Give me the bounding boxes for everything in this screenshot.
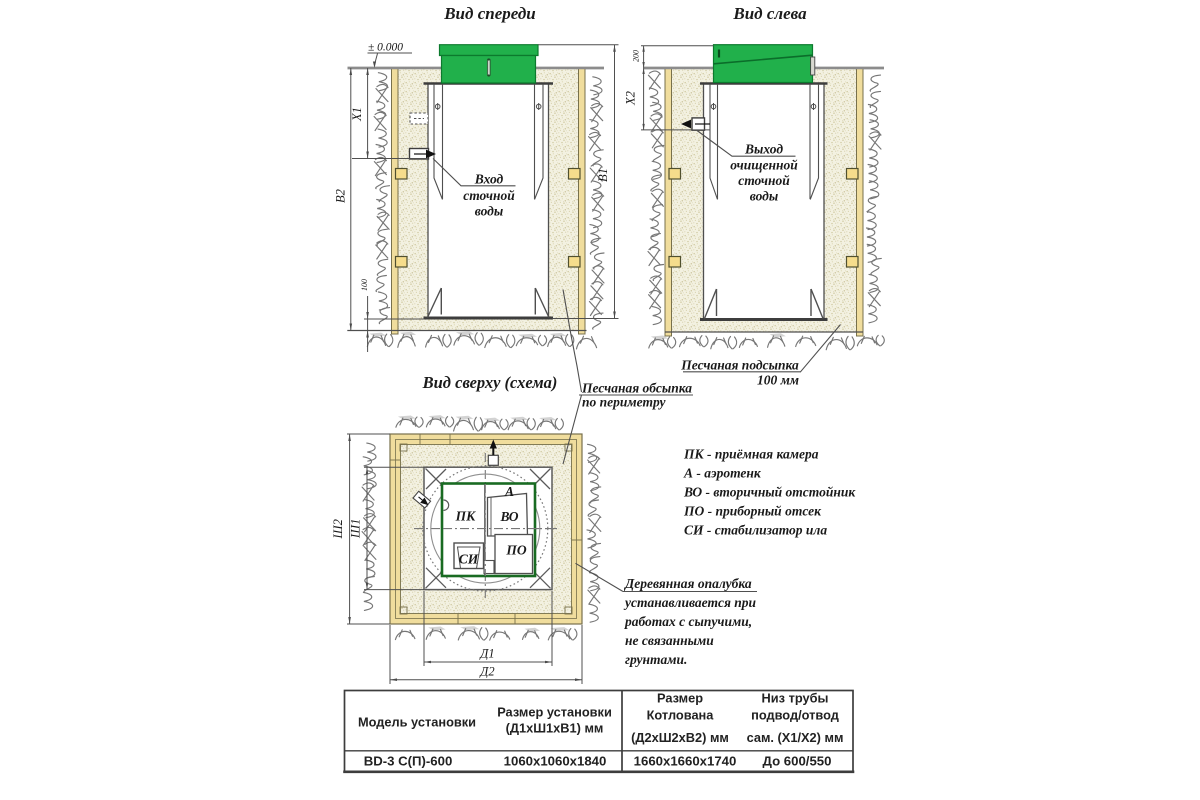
svg-text:X1: X1 [350, 107, 364, 122]
svg-text:очищенной: очищенной [730, 158, 798, 173]
svg-text:В1: В1 [596, 168, 610, 182]
svg-text:СИ: СИ [459, 552, 479, 567]
svg-text:ПО - приборный отсек: ПО - приборный отсек [683, 504, 822, 519]
svg-text:Деревянная опалубка: Деревянная опалубка [623, 576, 752, 591]
svg-text:Вид сверху (схема): Вид сверху (схема) [422, 373, 558, 392]
svg-text:Низ трубы: Низ трубы [762, 691, 829, 706]
svg-text:подвод/отвод: подвод/отвод [751, 708, 839, 723]
svg-text:1060х1060х1840: 1060х1060х1840 [504, 754, 607, 769]
svg-text:Выход: Выход [744, 142, 783, 157]
svg-text:ВО - вторичный отстойник: ВО - вторичный отстойник [683, 485, 856, 500]
svg-text:не связанными: не связанными [625, 633, 714, 648]
svg-text:грунтами.: грунтами. [625, 652, 687, 667]
svg-text:(Д2хШ2хВ2) мм: (Д2хШ2хВ2) мм [631, 730, 729, 745]
svg-text:Котлована: Котлована [647, 708, 715, 723]
svg-text:А - аэротенк: А - аэротенк [683, 466, 762, 481]
svg-text:X2: X2 [624, 91, 638, 106]
svg-text:Модель установки: Модель установки [358, 715, 476, 730]
svg-text:Ш2: Ш2 [331, 519, 345, 539]
svg-text:Д2: Д2 [479, 665, 494, 679]
svg-text:работах с сыпучими,: работах с сыпучими, [624, 614, 752, 629]
svg-text:Размер установки: Размер установки [497, 705, 612, 720]
svg-text:ВО: ВО [499, 509, 518, 524]
svg-text:ПК: ПК [455, 509, 477, 524]
svg-text:1660х1660х1740: 1660х1660х1740 [634, 754, 737, 769]
svg-text:До 600/550: До 600/550 [763, 754, 832, 769]
svg-text:BD-3 С(П)-600: BD-3 С(П)-600 [364, 754, 453, 769]
svg-text:Вход: Вход [474, 172, 504, 187]
svg-text:Д1: Д1 [479, 647, 494, 661]
svg-text:сточной: сточной [738, 173, 790, 188]
svg-text:100: 100 [360, 279, 369, 291]
svg-text:Размер: Размер [657, 691, 703, 706]
svg-text:Песчаная подсыпка: Песчаная подсыпка [680, 358, 799, 373]
svg-text:воды: воды [750, 189, 779, 204]
svg-text:по периметру: по периметру [582, 395, 667, 410]
svg-text:200: 200 [632, 50, 641, 62]
svg-text:А: А [504, 484, 514, 499]
svg-text:(Д1хШ1хВ1) мм: (Д1хШ1хВ1) мм [506, 721, 604, 736]
svg-text:Ш1: Ш1 [348, 519, 362, 539]
svg-text:Песчаная обсыпка: Песчаная обсыпка [581, 381, 692, 396]
svg-text:100 мм: 100 мм [757, 373, 799, 388]
svg-text:сточной: сточной [463, 188, 515, 203]
svg-text:ПК - приёмная камера: ПК - приёмная камера [683, 447, 819, 462]
svg-text:устанавливается при: устанавливается при [623, 595, 757, 610]
svg-text:В2: В2 [334, 189, 348, 203]
svg-text:сам. (Х1/Х2) мм: сам. (Х1/Х2) мм [747, 730, 844, 745]
svg-text:ПО: ПО [505, 543, 527, 558]
svg-text:± 0.000: ± 0.000 [368, 42, 403, 54]
svg-text:Вид слева: Вид слева [732, 4, 807, 23]
svg-text:СИ - стабилизатор ила: СИ - стабилизатор ила [684, 523, 827, 538]
svg-text:Вид спереди: Вид спереди [443, 4, 536, 23]
svg-text:воды: воды [475, 204, 504, 219]
